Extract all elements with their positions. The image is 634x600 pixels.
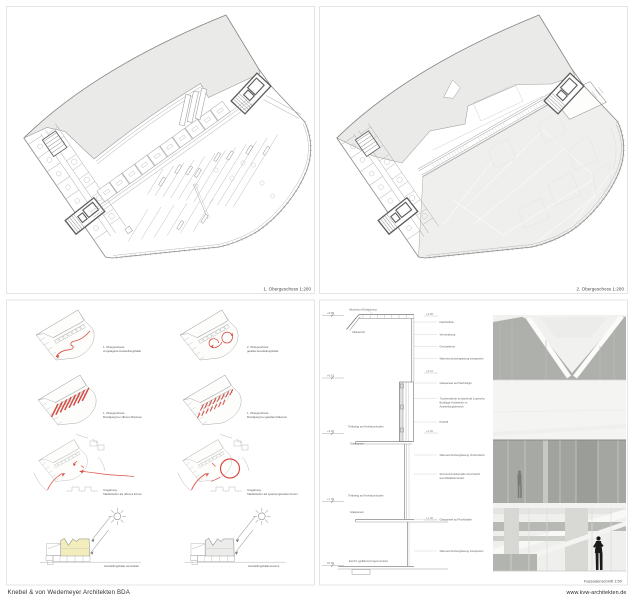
svg-text:Bordlage-Architektur im: Bordlage-Architektur im <box>440 401 469 405</box>
svg-text:Wärmeschutzverglasung transpar: Wärmeschutzverglasung transparent <box>440 549 484 553</box>
svg-text:+9.85: +9.85 <box>426 312 434 316</box>
svg-text:+4.20: +4.20 <box>327 429 335 433</box>
svg-text:Fassadenschnitt 1:50: Fassadenschnitt 1:50 <box>584 579 623 584</box>
svg-text:Rundgang bei geteilten Räumen: Rundgang bei geteilten Räumen <box>247 415 288 419</box>
svg-text:Glaspaneel auf Flachträger: Glaspaneel auf Flachträger <box>440 381 473 385</box>
svg-text:Glaspaneel: Glaspaneel <box>350 510 364 514</box>
svg-text:Dachaufbau: Dachaufbau <box>440 320 455 324</box>
svg-text:geteilte Ausstellungshalle: geteilte Ausstellungshalle <box>247 349 279 353</box>
svg-text:Wärmeschutzverglasung Verbunds: Wärmeschutzverglasung Verbundsich. <box>440 453 486 457</box>
svg-text:Estrich (geflämmt) fugenmontie: Estrich (geflämmt) fugenmontiert <box>349 559 388 563</box>
svg-text:+4.20: +4.20 <box>426 429 434 433</box>
svg-text:±0.00: ±0.00 <box>327 561 334 565</box>
svg-text:Glaspaneel auf Punkthalter: Glaspaneel auf Punkthalter <box>440 518 473 522</box>
svg-text:Trockenwände (umlaufend) & ges: Trockenwände (umlaufend) & geschw. <box>440 397 486 401</box>
svg-text:Profil B: Profil B <box>440 420 449 424</box>
svg-text:1. Obergeschoss 1:200: 1. Obergeschoss 1:200 <box>264 287 312 292</box>
svg-text:+6.10: +6.10 <box>327 374 335 378</box>
svg-text:+6.10: +6.10 <box>426 369 434 373</box>
svg-text:+1.30: +1.30 <box>327 497 335 501</box>
svg-text:Wärmeschutzverglasung transpar: Wärmeschutzverglasung transparent <box>440 357 484 361</box>
svg-text:Gerüstebene: Gerüstebene <box>440 345 456 349</box>
svg-text:Trittbelag auf Hohlraumboden: Trittbelag auf Hohlraumboden <box>348 425 384 429</box>
svg-text:Attikaprofil: Attikaprofil <box>352 330 365 334</box>
svg-text:aus Metallelementen: aus Metallelementen <box>440 476 465 480</box>
svg-text:vorgelagerte Ausstellungshalle: vorgelagerte Ausstellungshalle <box>103 349 141 353</box>
svg-text:2. Obergeschoss 1:200: 2. Obergeschoss 1:200 <box>577 287 625 292</box>
svg-text:Trittbelag auf Hohlraumboden: Trittbelag auf Hohlraumboden <box>348 494 384 498</box>
svg-text:www.kvw-architekten.de: www.kvw-architekten.de <box>565 590 626 596</box>
svg-text:Glaspaneel: Glaspaneel <box>350 442 364 446</box>
svg-text:Stadtstruktur als spannungsvol: Stadtstruktur als spannungsvolles Forum <box>247 492 298 496</box>
svg-text:Ausstellungshalle besonnt: Ausstellungshalle besonnt <box>248 564 279 568</box>
svg-text:+9.85: +9.85 <box>327 311 335 315</box>
svg-text:+1.30: +1.30 <box>426 516 434 520</box>
svg-text:Aluminium-Eindeckung: Aluminium-Eindeckung <box>349 308 377 312</box>
svg-text:Sonnenschutzlamellen Durchsich: Sonnenschutzlamellen Durchsicht <box>440 472 481 476</box>
svg-text:Ausstellungsbereich: Ausstellungsbereich <box>440 405 465 409</box>
svg-text:Stadtstruktur als offenes Foru: Stadtstruktur als offenes Forum <box>103 492 143 496</box>
svg-text:Rundgang bei offenen Räumen: Rundgang bei offenen Räumen <box>103 415 142 419</box>
svg-text:Ausstellungshalle verschattet: Ausstellungshalle verschattet <box>104 564 139 568</box>
svg-text:Verschattung: Verschattung <box>440 333 456 337</box>
svg-text:Knebel & von Wedemeyer Archite: Knebel & von Wedemeyer Architekten BDA <box>8 589 131 596</box>
